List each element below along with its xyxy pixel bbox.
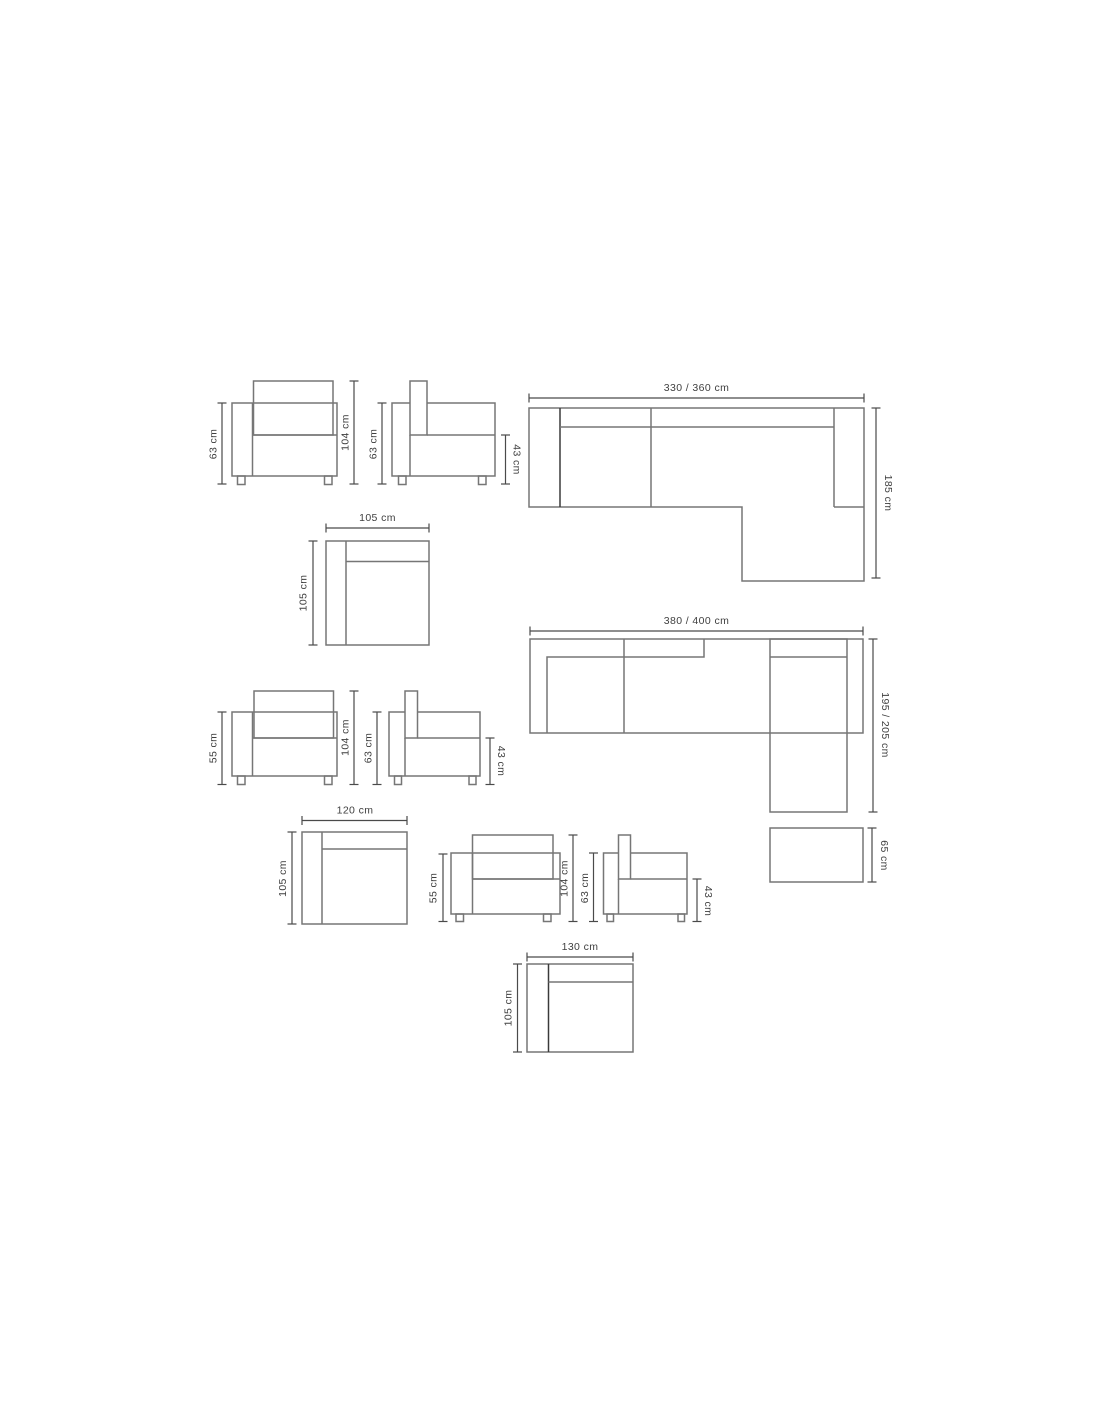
left-armrest-backrest-line xyxy=(547,639,704,733)
dimension-label: 63 cm xyxy=(208,429,220,460)
dimension-label: 63 cm xyxy=(363,733,375,764)
dimension-label: 104 cm xyxy=(559,860,571,897)
dimension-line-width xyxy=(527,953,633,962)
dimension-label: 330 / 360 cm xyxy=(664,382,730,394)
module-120-top-view: 120 cm 105 cm xyxy=(277,805,407,925)
dimension-label: 55 cm xyxy=(428,873,440,904)
chair-body xyxy=(232,403,337,476)
chair-leg xyxy=(607,914,614,922)
dimension-line-seat-height xyxy=(693,879,702,922)
armchair3-front-view: 55 cm 104 cm xyxy=(428,835,578,922)
module-outline xyxy=(326,541,429,645)
module-outline xyxy=(302,832,407,924)
dimension-label: 63 cm xyxy=(368,429,380,460)
chair-leg xyxy=(238,476,246,485)
ottoman-outline xyxy=(770,828,863,882)
armchair1-side-view: 63 cm 43 cm xyxy=(368,381,523,485)
corner-module-105-top-view: 105 cm 105 cm xyxy=(298,512,430,645)
chair-leg xyxy=(479,476,487,485)
dimension-label: 43 cm xyxy=(511,444,523,475)
chair-leg xyxy=(469,776,476,785)
dimension-label: 195 / 205 cm xyxy=(879,692,891,758)
armchair1-front-view: 63 cm 104 cm xyxy=(208,381,359,485)
dimension-line-depth xyxy=(868,828,877,882)
armrest xyxy=(405,691,418,738)
chair-body xyxy=(451,853,560,914)
armchair2-front-view: 55 cm 104 cm xyxy=(208,691,359,785)
dimension-line-width xyxy=(530,627,863,636)
dimension-line-depth xyxy=(872,408,881,578)
chair-leg xyxy=(456,914,464,922)
armrest xyxy=(410,381,427,435)
dimension-label: 43 cm xyxy=(495,746,507,777)
chair-leg xyxy=(325,776,333,785)
sectional-sofa-330-360-top-view: 330 / 360 cm 185 cm xyxy=(529,382,894,581)
backrest xyxy=(254,381,334,435)
chair-body xyxy=(604,853,688,914)
chair-body xyxy=(392,403,495,476)
chair-leg xyxy=(395,776,402,785)
dimension-label: 105 cm xyxy=(503,990,515,1027)
chair-leg xyxy=(399,476,407,485)
chair-body xyxy=(232,712,337,776)
dimension-label: 105 cm xyxy=(298,575,310,612)
chair-leg xyxy=(678,914,685,922)
dimension-line-height xyxy=(439,854,448,922)
armchair2-side-view: 63 cm 43 cm xyxy=(363,691,508,785)
dimension-label: 130 cm xyxy=(562,941,599,953)
chair-leg xyxy=(238,776,246,785)
armrest xyxy=(619,835,631,879)
dimension-line-width xyxy=(529,394,864,403)
dimension-label: 380 / 400 cm xyxy=(664,615,730,627)
dimension-label: 65 cm xyxy=(878,840,890,871)
module-outline xyxy=(527,964,633,1052)
dimension-line-width xyxy=(326,524,429,533)
dimension-label: 105 cm xyxy=(359,512,396,524)
dimension-label: 55 cm xyxy=(208,733,220,764)
sofa-dimension-diagram-page: 63 cm 104 cm 63 cm 43 cm 330 / 360 c xyxy=(0,0,1100,1422)
dimension-label: 63 cm xyxy=(579,873,591,904)
dimension-label: 43 cm xyxy=(702,886,714,917)
sofa-dimension-diagram: 63 cm 104 cm 63 cm 43 cm 330 / 360 c xyxy=(0,0,1100,1422)
dimension-line-width xyxy=(302,816,407,825)
backrest xyxy=(254,691,334,738)
chair-leg xyxy=(544,914,552,922)
dimension-label: 120 cm xyxy=(337,805,374,817)
chair-leg xyxy=(325,476,333,485)
backrest xyxy=(473,835,554,879)
sofa-body-outline xyxy=(530,639,863,733)
dimension-label: 104 cm xyxy=(340,719,352,756)
dimension-line-depth xyxy=(869,639,878,812)
sofa-outline xyxy=(529,408,864,581)
armchair3-side-view: 63 cm 43 cm xyxy=(579,835,714,922)
module-130-top-view: 130 cm 105 cm xyxy=(503,941,634,1052)
dimension-line-depth xyxy=(309,541,318,645)
dimension-label: 185 cm xyxy=(882,475,894,512)
chair-body xyxy=(389,712,480,776)
sectional-sofa-380-400-top-view: 380 / 400 cm 195 / 205 cm xyxy=(530,615,891,812)
dimension-line-seat-height xyxy=(486,738,495,785)
dimension-label: 104 cm xyxy=(340,414,352,451)
dimension-label: 105 cm xyxy=(277,860,289,897)
chaise-outline xyxy=(770,639,847,812)
dimension-line-seat-height xyxy=(501,435,510,484)
ottoman-top-view: 65 cm xyxy=(770,828,890,882)
